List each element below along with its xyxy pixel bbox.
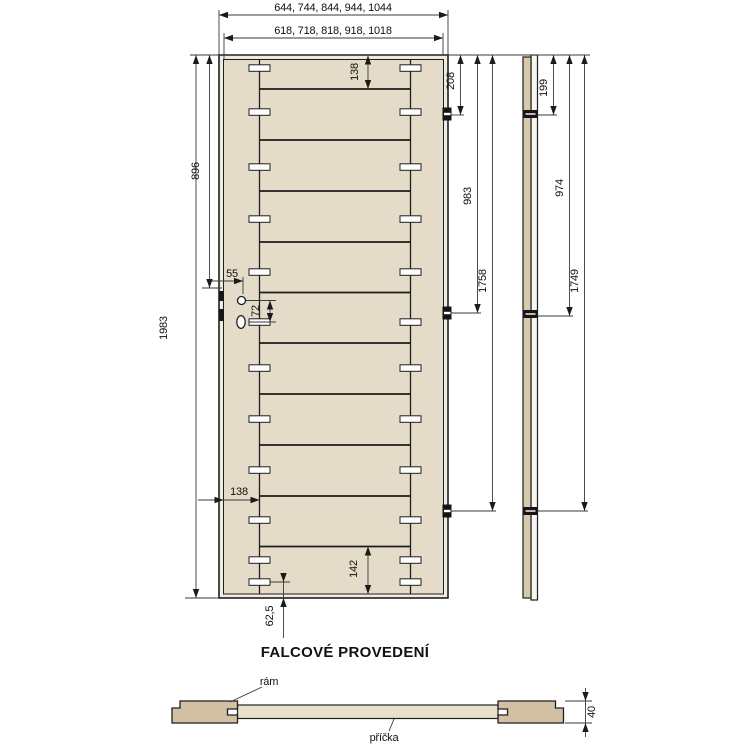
section-frame-right [498, 701, 564, 723]
section-view: rám příčka [172, 676, 564, 744]
dimension-arrow [581, 55, 587, 64]
technical-drawing-canvas: 644, 744, 844, 944, 1044 618, 718, 818, … [0, 0, 748, 747]
lock-faceplate-bolt [220, 309, 225, 321]
tenon-slot [249, 579, 270, 586]
drawing-title: FALCOVÉ PROVEDENÍ [261, 644, 430, 661]
dim-side-hinge-2: 974 [554, 179, 566, 197]
tenon-slot [400, 319, 421, 326]
tenon-slot [400, 416, 421, 423]
dim-top-to-lock: 896 [190, 162, 202, 180]
tenon-slot [249, 557, 270, 564]
dimension-arrow [206, 279, 212, 288]
dimension-arrow [434, 35, 443, 41]
partition-leader-line [389, 719, 394, 731]
dimension-arrow [489, 502, 495, 511]
tenon-slot [400, 517, 421, 524]
door-drawing: 644, 744, 844, 944, 1044 618, 718, 818, … [0, 0, 748, 747]
dim-stile-width: 138 [230, 486, 248, 498]
dim-top-rail: 138 [349, 63, 361, 81]
lock-faceplate-latch [220, 291, 225, 301]
frame-label: rám [260, 676, 278, 688]
dimension-arrow [457, 55, 463, 64]
tenon-slot [249, 467, 270, 474]
dim-thickness: 40 [586, 706, 598, 718]
dimension-arrow [219, 12, 228, 18]
frame-leader-line [230, 687, 262, 702]
hinge-mark-slit [526, 313, 536, 314]
dimension-arrow [550, 55, 556, 64]
dim-side-hinge-1: 199 [538, 79, 550, 97]
dim-bottom-rail: 142 [348, 560, 360, 578]
tenon-slot [249, 164, 270, 171]
dim-side-hinge-3: 1749 [569, 269, 581, 293]
dimension-arrow [550, 106, 556, 115]
front-view [219, 55, 452, 598]
dimension-arrow [582, 692, 588, 701]
hinge-mark-slit [444, 510, 451, 512]
side-view [523, 55, 538, 600]
dim-hinge-3: 1758 [477, 269, 489, 293]
dim-lock-backset: 55 [226, 268, 238, 280]
tenon-slot [249, 65, 270, 72]
tenon-slot [400, 164, 421, 171]
tenon-slot [400, 557, 421, 564]
dimension-arrow [224, 35, 233, 41]
dimension-arrow [193, 55, 199, 64]
dim-hinge-1: 208 [445, 72, 457, 90]
dimension-arrow [193, 589, 199, 598]
handle-spindle-hole [238, 297, 246, 305]
tenon-slot [249, 416, 270, 423]
dimension-arrow [439, 12, 448, 18]
keyhole [237, 316, 245, 329]
tenon-slot [400, 65, 421, 72]
section-partition-bar [238, 705, 499, 719]
side-leaf-strip [523, 57, 531, 598]
tenon-slot [400, 109, 421, 116]
dimension-arrow [489, 55, 495, 64]
tenon-slot [249, 269, 270, 276]
tenon-slot [249, 216, 270, 223]
side-falc-strip [531, 55, 538, 600]
dimension-arrow [582, 723, 588, 732]
tenon-slot [249, 517, 270, 524]
hinge-mark-slit [526, 113, 536, 114]
partition-label: příčka [370, 732, 400, 744]
dim-height: 1983 [158, 316, 170, 340]
dim-bottom-dowel: 62,5 [264, 606, 276, 627]
dimension-arrow [581, 502, 587, 511]
tenon-slot [400, 579, 421, 586]
dimension-arrow [474, 304, 480, 313]
dim-hinge-2: 983 [462, 187, 474, 205]
dimension-arrow [280, 598, 286, 607]
dimension-arrow [474, 55, 480, 64]
dim-handle-to-key: 72 [250, 305, 262, 317]
dimension-arrow [206, 55, 212, 64]
tenon-slot [249, 109, 270, 116]
tenon-slot [400, 216, 421, 223]
section-frame-left [172, 701, 238, 723]
dimension-arrow [457, 106, 463, 115]
dimension-arrow [566, 307, 572, 316]
hinge-mark-slit [444, 113, 451, 115]
hinge-mark-slit [444, 312, 451, 314]
tenon-slot [249, 365, 270, 372]
dimension-arrow [566, 55, 572, 64]
hinge-mark-slit [526, 510, 536, 511]
dim-width-outer: 644, 744, 844, 944, 1044 [274, 2, 392, 14]
tenon-slot [400, 467, 421, 474]
tenon-slot [400, 269, 421, 276]
tenon-slot [400, 365, 421, 372]
dim-width-inner: 618, 718, 818, 918, 1018 [274, 25, 392, 37]
